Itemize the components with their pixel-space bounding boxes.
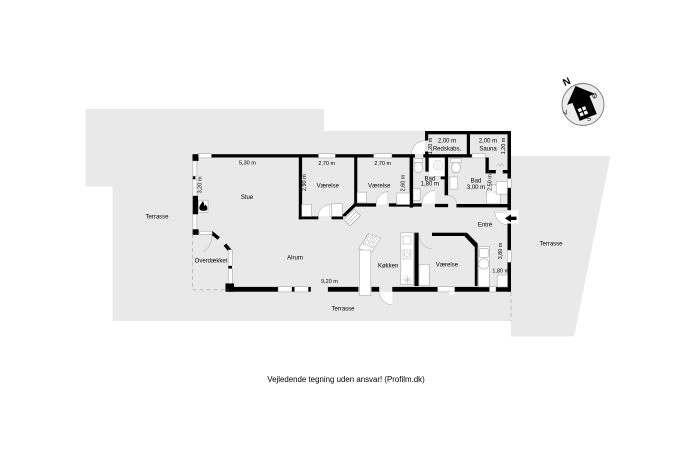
svg-text:Terrasse: Terrasse [539, 242, 563, 248]
svg-text:Redskabs.: Redskabs. [433, 147, 462, 153]
svg-text:Terrasse: Terrasse [145, 215, 169, 221]
svg-text:3,00 m: 3,00 m [467, 185, 485, 191]
svg-text:1,80 m: 1,80 m [421, 181, 439, 187]
svg-text:Overdækket: Overdækket [195, 259, 228, 265]
svg-text:Køkken: Køkken [378, 264, 398, 270]
svg-text:1,80 m: 1,80 m [492, 269, 509, 275]
svg-text:Entré: Entré [478, 222, 493, 228]
svg-text:2,00 m: 2,00 m [479, 139, 497, 145]
svg-text:Værelse: Værelse [368, 184, 391, 190]
svg-text:3,20 m: 3,20 m [197, 176, 203, 193]
svg-text:2,60 m: 2,60 m [401, 174, 407, 191]
svg-text:2,70 m: 2,70 m [318, 161, 335, 167]
svg-text:5,30 m: 5,30 m [239, 160, 256, 166]
svg-text:Værelse: Værelse [436, 262, 459, 268]
svg-text:1,20 m: 1,20 m [501, 137, 507, 154]
svg-text:3,80 m: 3,80 m [498, 242, 504, 259]
svg-text:9,20 m: 9,20 m [321, 279, 338, 285]
svg-text:1,20 m: 1,20 m [428, 137, 434, 154]
svg-text:2,70 m: 2,70 m [374, 161, 391, 167]
svg-text:2,90 m: 2,90 m [302, 174, 308, 191]
svg-text:Terrasse: Terrasse [331, 307, 355, 313]
svg-text:Værelse: Værelse [317, 184, 340, 190]
svg-text:2,00 m: 2,00 m [438, 139, 456, 145]
svg-text:Bad: Bad [471, 179, 482, 185]
svg-text:Stue: Stue [241, 195, 254, 201]
svg-text:Alrum: Alrum [287, 256, 303, 262]
svg-text:2,50 m: 2,50 m [488, 174, 494, 191]
svg-text:Vejledende tegning uden ansvar: Vejledende tegning uden ansvar! (Profilm… [267, 375, 425, 384]
svg-text:Sauna: Sauna [479, 147, 497, 153]
